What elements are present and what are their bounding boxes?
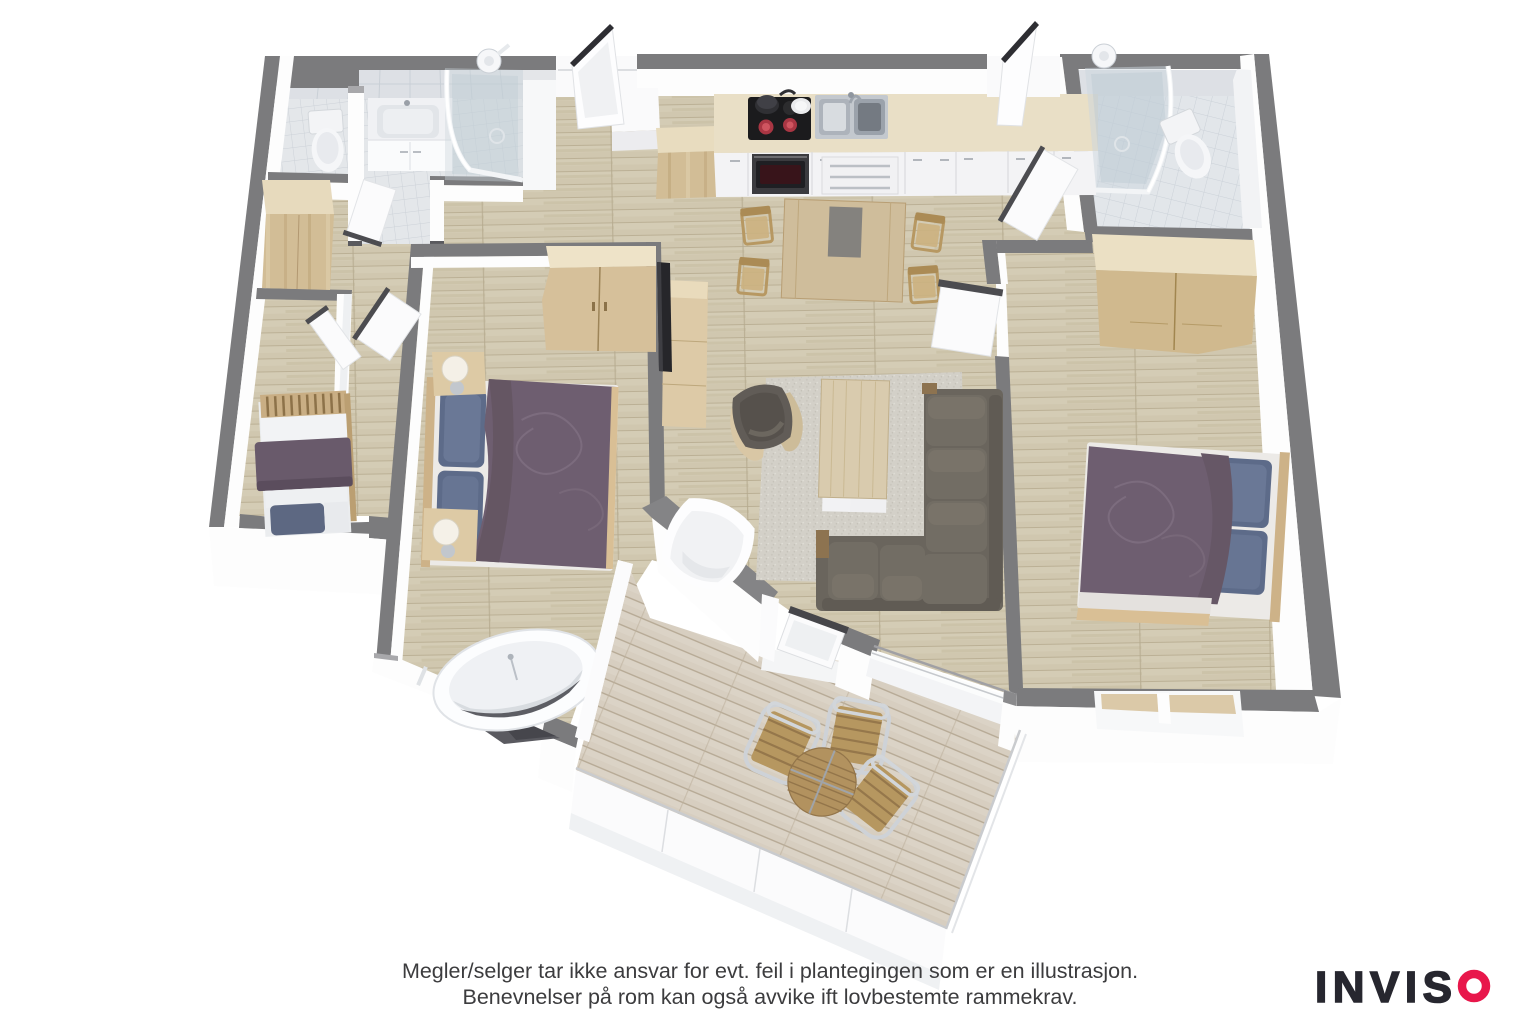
svg-text:Benevnelser på rom kan også av: Benevnelser på rom kan også avvike ift l… xyxy=(462,985,1077,1009)
svg-text:Megler/selger tar ikke ansvar: Megler/selger tar ikke ansvar for evt. f… xyxy=(402,959,1138,983)
svg-text:INVIS: INVIS xyxy=(1315,963,1457,1012)
